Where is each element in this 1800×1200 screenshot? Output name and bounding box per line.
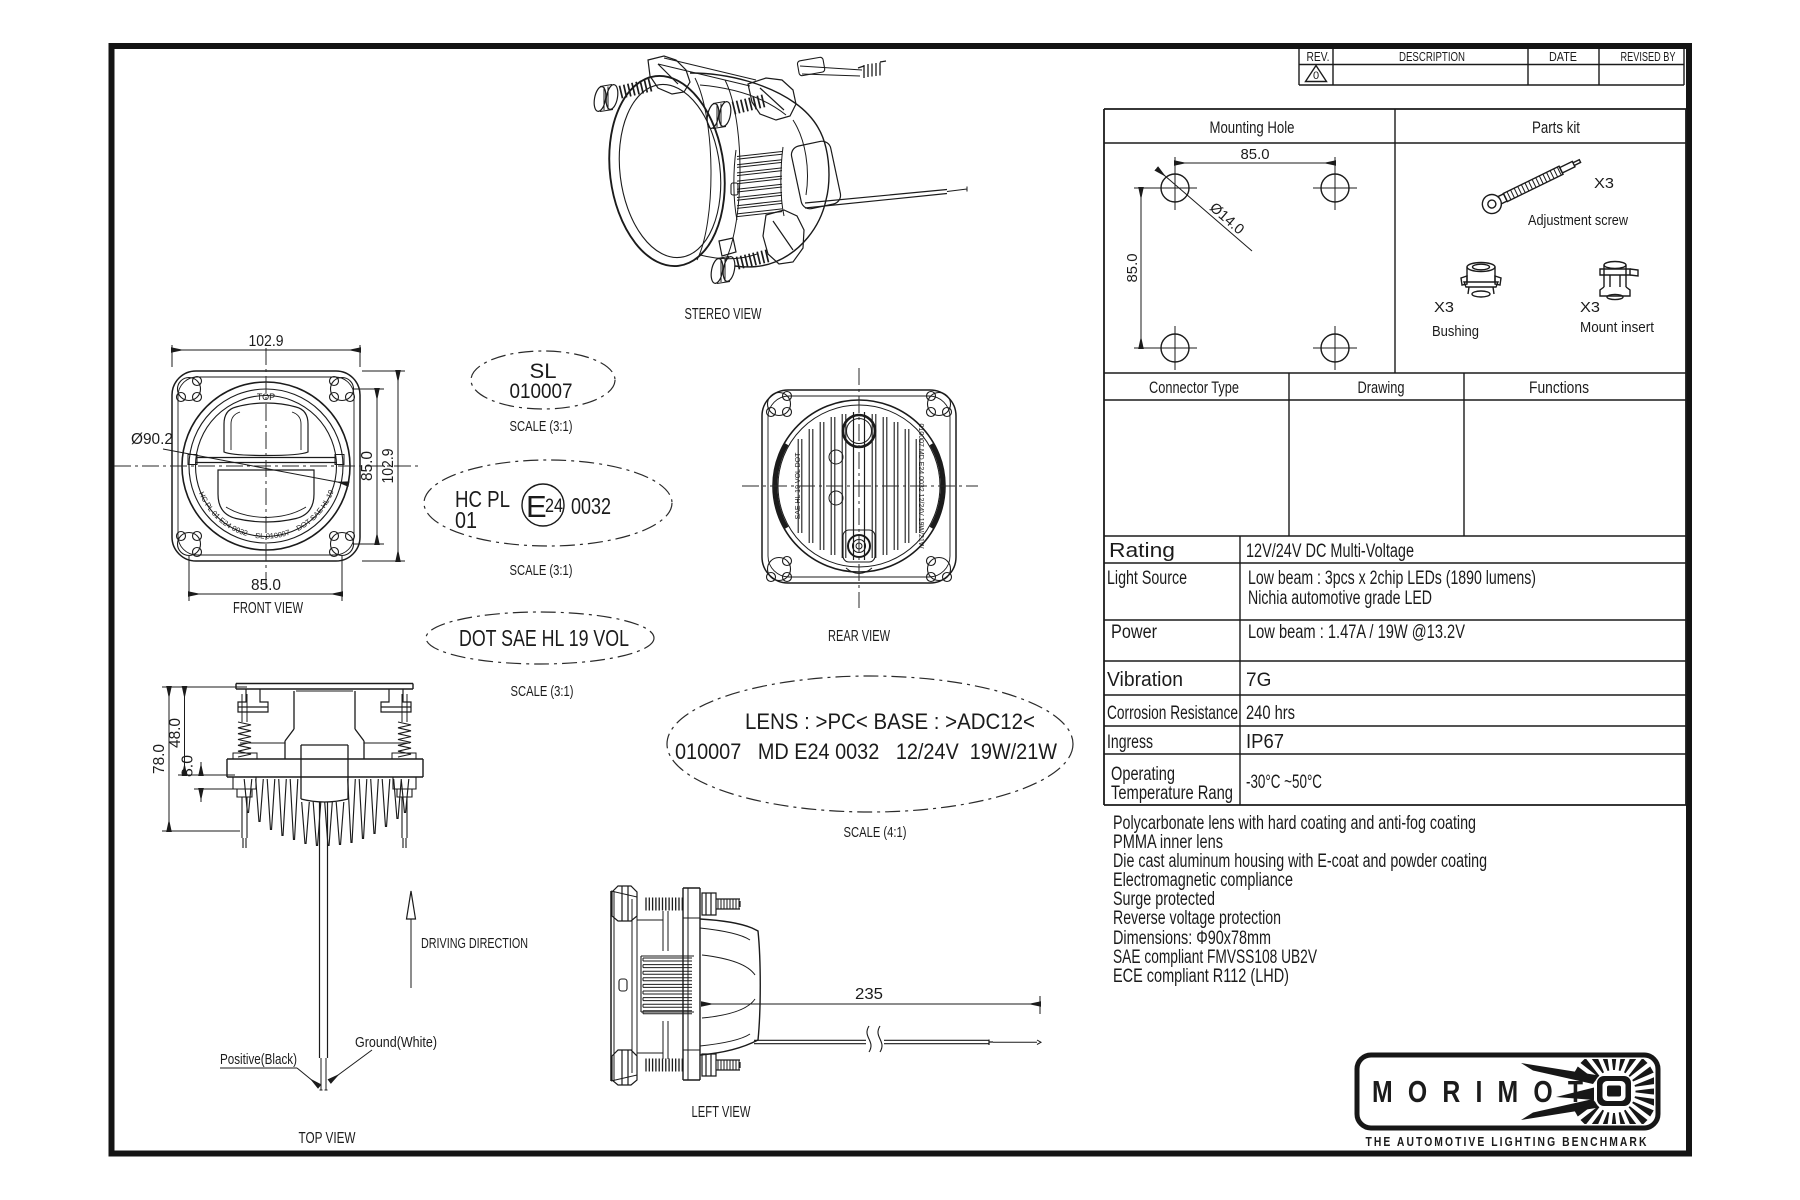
svg-text:Surge protected: Surge protected (1113, 889, 1215, 910)
svg-text:Electromagnetic compliance: Electromagnetic compliance (1113, 870, 1293, 891)
svg-text:01: 01 (455, 507, 477, 533)
svg-text:0032: 0032 (571, 493, 611, 519)
svg-text:Functions: Functions (1529, 378, 1589, 397)
svg-text:Light Source: Light Source (1107, 568, 1187, 589)
svg-text:48.0: 48.0 (167, 718, 184, 748)
svg-text:Die cast aluminum housing with: Die cast aluminum housing with E-coat an… (1113, 851, 1487, 872)
svg-text:REVISED BY: REVISED BY (1621, 50, 1676, 64)
svg-text:ECE compliant R112 (LHD): ECE compliant R112 (LHD) (1113, 966, 1289, 987)
svg-text:DATE: DATE (1549, 50, 1577, 64)
svg-text:235: 235 (855, 986, 883, 1003)
svg-text:Corrosion Resistance: Corrosion Resistance (1107, 703, 1238, 724)
svg-text:Polycarbonate lens with hard c: Polycarbonate lens with hard coating and… (1113, 813, 1476, 834)
svg-text:THE AUTOMOTIVE LIGHTING BENCHM: THE AUTOMOTIVE LIGHTING BENCHMARK (1366, 1135, 1649, 1149)
svg-text:Low beam : 3pcs x 2chip LEDs (: Low beam : 3pcs x 2chip LEDs (1890 lumen… (1248, 568, 1536, 589)
svg-text:Power: Power (1111, 622, 1158, 643)
svg-text:X3: X3 (1434, 299, 1454, 316)
svg-text:Reverse voltage protection: Reverse voltage protection (1113, 908, 1281, 929)
svg-text:X3: X3 (1594, 175, 1614, 192)
svg-text:MORIMOT: MORIMOT (1372, 1074, 1598, 1108)
svg-text:7G: 7G (1246, 670, 1271, 691)
svg-text:Low beam : 1.47A / 19W @13.2V: Low beam : 1.47A / 19W @13.2V (1248, 622, 1465, 643)
svg-text:LENS : >PC< BASE : >ADC12<: LENS : >PC< BASE : >ADC12< (745, 709, 1035, 734)
svg-text:DESCRIPTION: DESCRIPTION (1399, 50, 1465, 64)
svg-text:DOT SAE HL 19 VOL: DOT SAE HL 19 VOL (459, 625, 629, 651)
svg-text:12V/24V DC Multi-Voltage: 12V/24V DC Multi-Voltage (1246, 541, 1414, 562)
svg-text:Mount insert: Mount insert (1580, 319, 1655, 336)
svg-text:85.0: 85.0 (1241, 147, 1270, 163)
svg-text:010007: 010007 (510, 380, 573, 403)
svg-text:SCALE (3:1): SCALE (3:1) (510, 562, 573, 579)
svg-text:LEFT VIEW: LEFT VIEW (692, 1104, 752, 1121)
svg-text:X3: X3 (1580, 299, 1600, 316)
svg-text:Ingress: Ingress (1107, 732, 1153, 753)
svg-text:Ø90.2: Ø90.2 (131, 431, 173, 448)
svg-text:8.0: 8.0 (180, 755, 197, 777)
svg-text:24: 24 (545, 496, 563, 517)
svg-text:REV.: REV. (1307, 50, 1330, 64)
svg-text:Ground(White): Ground(White) (355, 1034, 437, 1051)
svg-text:Rating: Rating (1109, 540, 1175, 562)
svg-text:Connector Type: Connector Type (1149, 378, 1239, 397)
svg-text:E: E (526, 489, 547, 524)
svg-text:85.0: 85.0 (251, 577, 281, 594)
svg-text:85.0: 85.0 (359, 451, 376, 481)
svg-text:Mounting Hole: Mounting Hole (1210, 118, 1295, 137)
svg-text:Drawing: Drawing (1358, 378, 1405, 397)
svg-text:102.9: 102.9 (249, 333, 284, 350)
svg-text:SCALE (3:1): SCALE (3:1) (511, 683, 574, 700)
svg-text:Adjustment screw: Adjustment screw (1528, 212, 1628, 229)
svg-text:010007 MD E24 0032 12/24V: 010007 MD E24 0032 12/24V 19W/21W (675, 739, 1057, 764)
svg-text:240 hrs: 240 hrs (1246, 703, 1295, 724)
svg-text:-30°C ~50°C: -30°C ~50°C (1246, 772, 1322, 793)
svg-text:SCALE (3:1): SCALE (3:1) (510, 418, 573, 435)
svg-text:Parts kit: Parts kit (1532, 118, 1580, 137)
svg-text:Temperature Rang: Temperature Rang (1111, 783, 1233, 804)
svg-text:102.9: 102.9 (380, 449, 397, 484)
svg-text:0: 0 (1313, 70, 1319, 82)
svg-text:78.0: 78.0 (151, 744, 168, 774)
svg-text:Bushing: Bushing (1432, 323, 1479, 340)
svg-text:SAE compliant FMVSS108 UB2V: SAE compliant FMVSS108 UB2V (1113, 947, 1317, 968)
svg-text:SCALE (4:1): SCALE (4:1) (844, 824, 907, 841)
svg-text:Nichia automotive grade LED: Nichia automotive grade LED (1248, 588, 1432, 609)
svg-text:Vibration: Vibration (1107, 669, 1183, 691)
svg-text:TOP VIEW: TOP VIEW (299, 1130, 357, 1147)
svg-text:Positive(Black): Positive(Black) (220, 1051, 297, 1068)
svg-text:IP67: IP67 (1246, 731, 1284, 753)
svg-text:STEREO VIEW: STEREO VIEW (685, 306, 763, 323)
svg-text:Operating: Operating (1111, 764, 1175, 785)
svg-text:85.0: 85.0 (1125, 254, 1141, 283)
svg-text:REAR VIEW: REAR VIEW (828, 628, 891, 645)
svg-text:Dimensions: Φ90x78mm: Dimensions: Φ90x78mm (1113, 928, 1271, 949)
svg-text:DRIVING DIRECTION: DRIVING DIRECTION (421, 935, 528, 952)
svg-text:FRONT VIEW: FRONT VIEW (233, 600, 304, 617)
svg-text:PMMA inner lens: PMMA inner lens (1113, 832, 1223, 853)
